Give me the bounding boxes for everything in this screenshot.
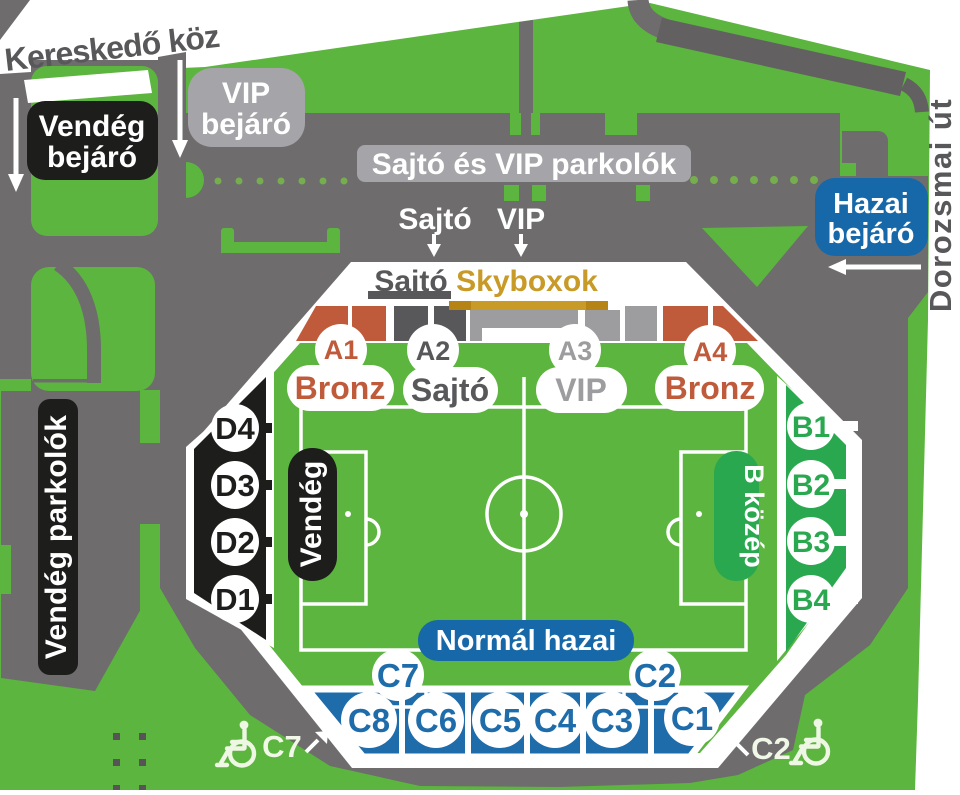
svg-text:D3: D3 <box>215 468 255 503</box>
svg-text:B4: B4 <box>792 584 831 617</box>
svg-text:bejáró: bejáró <box>827 218 914 250</box>
svg-text:Bronz: Bronz <box>665 370 756 406</box>
svg-text:Normál hazai: Normál hazai <box>436 625 617 657</box>
svg-text:Hazai: Hazai <box>833 188 909 220</box>
svg-text:Vendég: Vendég <box>39 110 146 143</box>
svg-text:C8: C8 <box>348 702 390 739</box>
svg-text:B1: B1 <box>792 411 830 444</box>
svg-text:A3: A3 <box>558 336 593 366</box>
svg-text:Dorozsmai út: Dorozsmai út <box>923 98 958 312</box>
svg-text:Sajtó: Sajtó <box>411 372 489 408</box>
svg-text:C7: C7 <box>262 729 302 764</box>
svg-text:bejáró: bejáró <box>47 141 137 174</box>
svg-text:VIP: VIP <box>222 77 270 110</box>
svg-text:Vendég parkolók: Vendég parkolók <box>40 415 73 660</box>
svg-text:Sajtó: Sajtó <box>398 203 471 236</box>
svg-text:A4: A4 <box>693 337 728 367</box>
svg-text:A1: A1 <box>324 335 359 365</box>
svg-text:B3: B3 <box>792 526 830 559</box>
svg-text:C4: C4 <box>534 702 577 739</box>
svg-text:Skyboxok: Skyboxok <box>456 265 598 298</box>
svg-text:C1: C1 <box>671 700 713 737</box>
svg-text:bejáró: bejáró <box>201 108 291 141</box>
svg-text:Sajtó és VIP parkolók: Sajtó és VIP parkolók <box>372 148 677 181</box>
svg-text:A2: A2 <box>416 336 451 366</box>
svg-text:C6: C6 <box>415 702 457 739</box>
svg-text:Vendég: Vendég <box>295 461 328 568</box>
svg-text:VIP: VIP <box>555 372 607 408</box>
svg-text:B2: B2 <box>792 469 830 502</box>
svg-text:C7: C7 <box>377 657 419 694</box>
svg-text:D1: D1 <box>215 582 255 617</box>
svg-text:C2: C2 <box>634 657 676 694</box>
svg-text:C2: C2 <box>751 731 791 766</box>
svg-text:D2: D2 <box>215 525 255 560</box>
svg-text:D4: D4 <box>215 411 255 446</box>
svg-text:C5: C5 <box>479 702 521 739</box>
svg-text:B közép: B közép <box>739 464 769 568</box>
svg-text:C3: C3 <box>591 702 633 739</box>
svg-text:VIP: VIP <box>497 203 545 236</box>
svg-text:Bronz: Bronz <box>295 370 386 406</box>
